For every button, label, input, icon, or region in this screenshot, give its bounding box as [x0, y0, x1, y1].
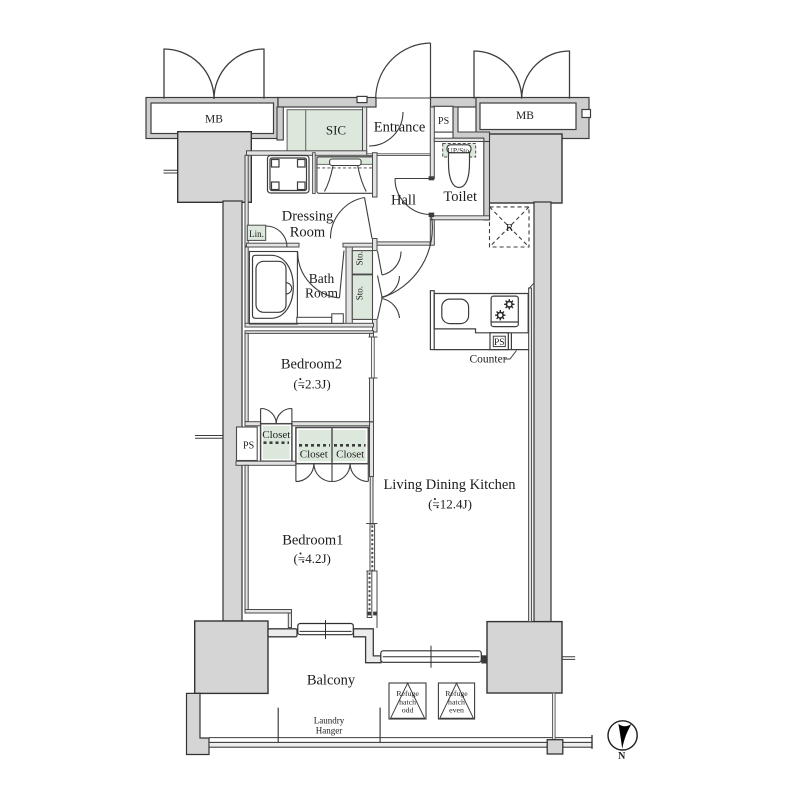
svg-text:Closet: Closet: [262, 429, 290, 441]
svg-text:Hall: Hall: [391, 193, 416, 209]
svg-text:Sto.: Sto.: [355, 251, 365, 265]
svg-text:Bedroom2: Bedroom2: [281, 357, 342, 373]
svg-text:MB: MB: [516, 110, 534, 122]
svg-text:Closet: Closet: [300, 448, 328, 460]
svg-text:Lin.: Lin.: [249, 229, 264, 239]
svg-text:PS: PS: [438, 116, 449, 127]
svg-text:UP/Sto.: UP/Sto.: [447, 146, 471, 155]
svg-text:Dressing: Dressing: [282, 209, 334, 225]
svg-text:(=4.2J): (=4.2J): [294, 551, 331, 566]
svg-text:Room: Room: [290, 225, 326, 241]
svg-text:N: N: [618, 751, 626, 762]
svg-text:Bedroom1: Bedroom1: [282, 533, 343, 549]
svg-text:PS: PS: [494, 338, 505, 348]
svg-text:Laundry: Laundry: [314, 716, 345, 726]
svg-text:Toilet: Toilet: [443, 189, 477, 205]
svg-text:SIC: SIC: [326, 123, 346, 138]
svg-text:R: R: [506, 222, 514, 234]
svg-text:odd: odd: [402, 706, 414, 715]
svg-text:Hanger: Hanger: [316, 726, 343, 736]
svg-text:Closet: Closet: [336, 448, 364, 460]
svg-text:even: even: [449, 706, 464, 715]
svg-text:Living Dining Kitchen: Living Dining Kitchen: [383, 477, 516, 493]
svg-text:Balcony: Balcony: [307, 673, 356, 689]
svg-text:Counter: Counter: [469, 354, 506, 366]
svg-text:PS: PS: [243, 440, 254, 451]
svg-text:Sto.: Sto.: [355, 286, 365, 300]
svg-text:(=2.3J): (=2.3J): [293, 377, 330, 392]
svg-text:MB: MB: [205, 114, 223, 126]
svg-text:Bath: Bath: [309, 271, 335, 286]
